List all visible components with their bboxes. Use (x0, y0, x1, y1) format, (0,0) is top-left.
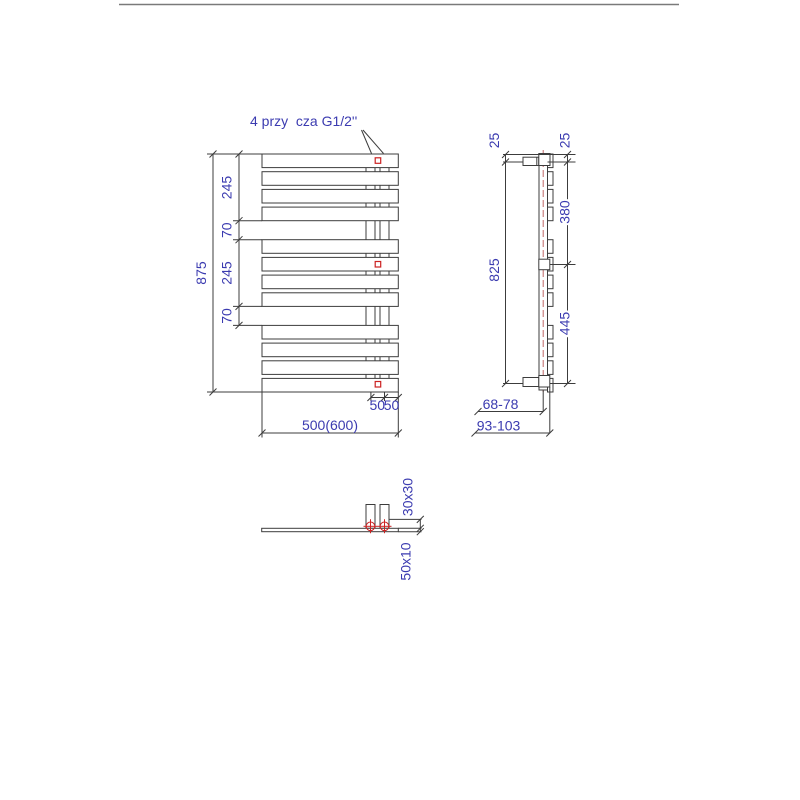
radiator-slat (262, 343, 398, 357)
front-view: 875 245 70 245 70 50 50 500(600) (193, 130, 402, 438)
dim-overall-width: 500(600) (302, 417, 358, 433)
radiator-slat (548, 325, 554, 339)
radiator-slat (548, 293, 554, 307)
dim-top-offset-right: 25 (557, 133, 573, 149)
connection-marker (375, 158, 381, 164)
radiator-slat (262, 361, 398, 375)
radiator-slat (548, 172, 554, 186)
label-collector-profile: 30x30 (400, 478, 416, 516)
dim-wall-to-front: 93-103 (477, 418, 521, 434)
radiator-slat (262, 189, 398, 203)
radiator-slat (262, 172, 398, 186)
dim-connection-offset: 50 (384, 397, 400, 413)
dim-axis-span: 825 (486, 258, 502, 282)
radiator-slat (262, 325, 398, 339)
dim-top-offset-left: 25 (486, 133, 502, 149)
radiator-slat (548, 343, 554, 357)
middle-bracket (539, 259, 550, 270)
side-slat-edges (548, 154, 554, 392)
radiator-slat (548, 361, 554, 375)
dim-segment: 245 (219, 261, 235, 285)
front-slats (262, 154, 398, 392)
radiator-slat (262, 293, 398, 307)
top-bracket (539, 154, 550, 166)
dim-wall-to-axis: 68-78 (483, 396, 519, 412)
connection-marker (375, 382, 381, 388)
connection-marker (375, 262, 381, 268)
radiator-slat (262, 275, 398, 289)
radiator-slat (548, 275, 554, 289)
bottom-view: 30x30 50x10 (262, 478, 424, 581)
dim-segment: 70 (219, 308, 235, 324)
radiator-slat (548, 189, 554, 203)
radiator-slat (262, 207, 398, 221)
bottom-bracket (539, 376, 550, 388)
drawing-page: 4 przy cza G1/2'' (0, 0, 800, 800)
technical-drawing: 875 245 70 245 70 50 50 500(600) (0, 0, 800, 800)
dim-segment: 70 (219, 222, 235, 238)
bottom-fitting (523, 378, 539, 387)
side-view: 25 25 380 825 445 68-78 93-103 (472, 133, 576, 437)
label-panel-profile: 50x10 (398, 542, 414, 580)
dim-overall-height: 875 (193, 261, 209, 285)
dim-lower-span: 445 (557, 312, 573, 336)
radiator-slat (548, 240, 554, 254)
panel-section (262, 528, 399, 531)
radiator-slat (262, 240, 398, 254)
dim-upper-span: 380 (557, 200, 573, 224)
dim-segment: 245 (219, 176, 235, 200)
radiator-slat (548, 207, 554, 221)
